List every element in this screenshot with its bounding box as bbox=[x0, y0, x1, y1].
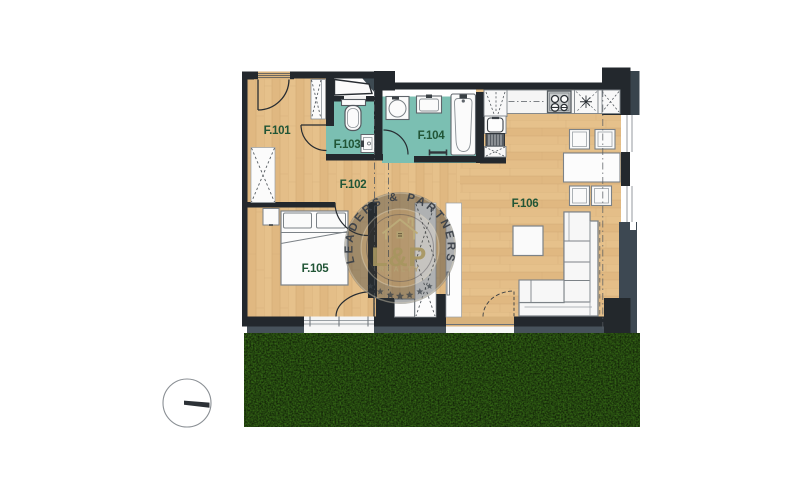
svg-text:F.104: F.104 bbox=[418, 130, 446, 142]
svg-text:F.102: F.102 bbox=[340, 179, 367, 191]
svg-text:F.105: F.105 bbox=[302, 263, 330, 275]
svg-text:F.106: F.106 bbox=[512, 198, 539, 210]
svg-text:F.101: F.101 bbox=[264, 125, 292, 137]
svg-text:F.103: F.103 bbox=[334, 139, 361, 151]
svg-text:REALTY: REALTY bbox=[379, 267, 421, 274]
